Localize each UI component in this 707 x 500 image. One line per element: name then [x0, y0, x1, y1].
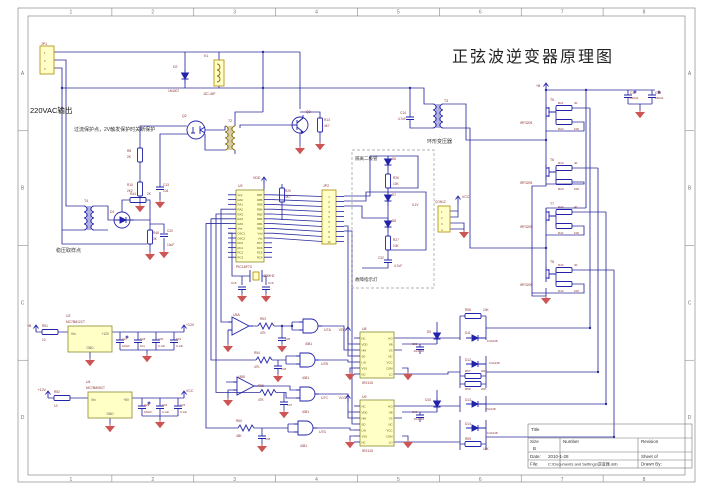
driver-pin-label: NC: [388, 354, 392, 358]
ground-icon: [160, 250, 168, 258]
schematic-label: C20: [167, 229, 173, 233]
opamp-u5a-icon: [228, 317, 253, 335]
schematic-label: Q2: [182, 114, 187, 118]
grid-row-label: C: [688, 300, 692, 306]
mcu-pin-label: Vdd: [258, 232, 263, 236]
schematic-label: R26: [393, 176, 399, 180]
grid-col-label: 1: [70, 477, 73, 483]
schematic-label: 4081: [305, 342, 312, 346]
schematic-label: T2: [228, 119, 232, 123]
diode-d2-icon: [182, 70, 189, 84]
mosfet-t5-icon: [546, 104, 556, 120]
schematic-label: R59: [465, 437, 471, 441]
schematic-label: +12V: [38, 388, 47, 392]
optocoupler-q2-icon: [187, 121, 205, 139]
ground-icon: [278, 344, 286, 352]
annotation-labels: JP1123220VAC输出过流保护点，2V触发保护时关断保护K1JZC-49F…: [27, 42, 664, 453]
schematic-label: 4081: [300, 444, 307, 448]
grid-col-label: 6: [479, 10, 482, 16]
schematic-label: R46: [153, 231, 159, 235]
diode-d7-icon: [385, 192, 392, 206]
schematic-shape: [272, 219, 322, 222]
schematic-label: 隔离二极管: [355, 155, 378, 162]
resistor-r53-icon: [258, 323, 274, 329]
schematic-label: C14: [400, 111, 406, 115]
schematic-label: 5.1V: [412, 203, 419, 207]
schematic-label: MC78M05CT: [86, 386, 105, 390]
transformer-t4-icon: [84, 206, 94, 230]
schematic-label: 47K: [254, 365, 261, 369]
grid-row-label: A: [21, 71, 25, 77]
schematic-label: R60: [236, 419, 242, 423]
schematic-shape: [597, 371, 599, 373]
schematic-label: 20K: [481, 369, 486, 373]
schematic-label: C29: [144, 403, 150, 407]
grid-col-label: 3: [233, 10, 236, 16]
capacitor-c20-icon: [160, 234, 168, 237]
diode-d9-icon: [434, 330, 441, 344]
ground-icon: [316, 142, 324, 150]
schematic-label: R58: [465, 387, 471, 391]
diode-d11-icon: [466, 335, 486, 341]
tb-drawn-label: Drawn By:: [641, 462, 662, 467]
schematic-label: VCC: [339, 396, 347, 400]
connector-jp1: [40, 46, 54, 74]
schematic-label: C16: [268, 281, 274, 285]
resistor-r51-icon: [42, 330, 58, 335]
sheet-title: 正弦波逆变器原理图: [452, 47, 614, 66]
grid-col-label: 4: [315, 10, 318, 16]
resistor-r40-icon: [556, 210, 572, 215]
schematic-shape: [272, 204, 322, 206]
schematic-label: IRF3205: [520, 181, 532, 185]
resistor-r60-icon: [238, 425, 254, 431]
grid-col-label: 5: [397, 10, 400, 16]
tb-file-label: File:: [530, 462, 539, 467]
schematic-label: VDD: [253, 176, 261, 180]
schematic-label: 20K: [481, 387, 486, 391]
schematic-label: 4K7: [285, 195, 291, 199]
driver-pin-label: NC: [388, 422, 392, 426]
mcu-pin-label: RC7: [257, 241, 263, 245]
schematic-label: 1N4148: [413, 349, 424, 353]
schematic-label: R21: [558, 101, 564, 105]
schematic-label: 40: [574, 263, 578, 267]
schematic-page: 1122334455667788AABBCCDD 正弦波逆变器原理图: [0, 0, 707, 500]
schematic-label: JP1: [41, 42, 47, 46]
schematic-label: R10: [127, 183, 133, 187]
resistor-r55-icon: [260, 390, 276, 396]
schematic-label: 10K: [393, 182, 400, 186]
driver-pin-label: HIN: [362, 348, 367, 352]
driver-pin-label: NC: [362, 404, 366, 408]
capacitor-c16-icon: [262, 287, 270, 290]
grid-col-label: 8: [643, 477, 646, 483]
schematic-shape: [272, 209, 322, 211]
schematic-label: 220VAC输出: [30, 105, 72, 115]
schematic-shape: [394, 316, 614, 450]
resistor-r8-icon: [138, 148, 143, 162]
mcu-pin-label: RC4: [257, 256, 263, 260]
grid-row-label: A: [688, 71, 692, 77]
schematic-label: 40: [574, 101, 578, 105]
schematic-label: U8: [362, 327, 367, 331]
schematic-label: 10uF: [167, 243, 174, 247]
ground-icon: [143, 354, 151, 362]
schematic-label: C36: [281, 367, 287, 371]
schematic-label: U5A: [233, 313, 240, 317]
tb-size-value: B: [533, 446, 536, 451]
schematic-label: R57: [465, 369, 471, 373]
schematic-label: C28: [140, 337, 146, 341]
schematic-shape: [262, 87, 264, 89]
schematic-label: D9: [427, 330, 431, 334]
jp2-pin-label: 10: [327, 240, 331, 244]
schematic-label: C37: [287, 403, 293, 407]
schematic-label: T6: [550, 158, 554, 162]
driver-pin-label: SD: [362, 422, 366, 426]
schematic-label: 2K: [147, 192, 152, 196]
grid-col-label: 7: [561, 477, 564, 483]
tb-number-label: Number: [563, 439, 580, 444]
resistor-r21-icon: [556, 106, 572, 111]
schematic-label: R51: [42, 324, 48, 328]
schematic-label: C38: [265, 437, 271, 441]
power-arrow-vdd-u8-icon: [346, 327, 351, 334]
tb-title-label: Title: [531, 427, 540, 432]
schematic-label: Vin: [71, 332, 76, 336]
grid-col-label: 2: [151, 477, 154, 483]
schematic-label: 1N4148: [489, 361, 500, 365]
schematic-label: R55: [258, 384, 264, 388]
driver-pin-label: VB: [389, 410, 393, 414]
driver-pin-label: NC: [362, 440, 366, 444]
schematic-label: CON12: [435, 200, 446, 204]
schematic-label: R42: [558, 263, 564, 267]
schematic-label: U9: [362, 395, 367, 399]
schematic-label: 47K: [258, 398, 265, 402]
power-arrow-vdd-icon: [262, 177, 267, 184]
schematic-label: 10K: [574, 231, 579, 235]
mcu-pin-label: RC1: [238, 246, 244, 250]
schematic-label: R27: [393, 238, 399, 242]
grid-row-label: D: [688, 415, 692, 421]
mcu-pin-label: RA2: [238, 208, 244, 212]
schematic-label: VDD: [339, 328, 347, 332]
schematic-label: R40: [558, 205, 564, 209]
schematic-label: K1: [204, 54, 208, 58]
resistor-r59-icon: [465, 442, 481, 447]
capacitor-c15-icon: [238, 287, 246, 290]
schematic-shape: [585, 89, 587, 91]
power-arrow-con12-icon: [456, 196, 461, 203]
schematic-label: 10K: [574, 187, 579, 191]
schematic-label: C32: [378, 256, 384, 260]
schematic-label: R53: [260, 317, 266, 321]
schematic-shape: [272, 233, 322, 236]
ground-icon: [636, 110, 644, 118]
schematic-label: C39: [412, 342, 418, 346]
schematic-label: 20MHZ: [264, 274, 275, 278]
schematic-label: R44: [130, 192, 136, 196]
schematic-shape: [272, 228, 322, 231]
schematic-label: D2: [173, 65, 178, 69]
schematic-label: R52: [54, 390, 60, 394]
mcu-pin-label: OSC2: [238, 236, 246, 240]
ground-icon: [156, 200, 164, 208]
resistor-r57-icon: [465, 374, 481, 379]
driver-pin-label: VS: [389, 348, 393, 352]
components: [40, 46, 661, 447]
resistor-r10-icon: [138, 182, 143, 196]
grid-col-label: 8: [643, 10, 646, 16]
schematic-label: D8: [392, 219, 396, 223]
ground-icon: [106, 424, 114, 432]
mcu-pin-label: RB7: [257, 193, 263, 197]
ground-icon: [274, 374, 282, 382]
schematic-label: D7: [392, 193, 396, 197]
capacitor-c32-icon: [384, 260, 392, 263]
capacitor-c14-icon: [406, 117, 414, 120]
schematic-label: U7D: [319, 430, 326, 434]
schematic-label: 10K: [483, 308, 490, 312]
schematic-label: R23: [558, 187, 564, 191]
driver-pin-label: VDD: [362, 410, 368, 414]
schematic-label: 0.1uF: [162, 410, 169, 414]
schematic-shape: [262, 51, 264, 53]
resistor-r42-icon: [556, 268, 572, 273]
schematic-label: C31: [176, 337, 182, 341]
ground-icon: [404, 440, 412, 448]
grid-col-label: 6: [479, 477, 482, 483]
schematic-label: 4081: [302, 376, 309, 380]
grid-row-label: B: [688, 186, 692, 192]
ground-icon: [280, 410, 288, 418]
resistor-r13-icon: [318, 118, 323, 132]
driver-pin-label: NC: [362, 372, 366, 376]
transformer-t2-icon: [225, 126, 235, 150]
mcu-pin-label: RC6: [257, 246, 263, 250]
power-arrow-b-icon: [544, 83, 549, 90]
schematic-label: 1N4148: [413, 417, 424, 421]
schematic-label: 220uF: [655, 96, 664, 100]
schematic-label: U4: [86, 380, 91, 384]
schematic-label: IRF3205: [520, 225, 532, 229]
schematic-label: D1: [110, 210, 115, 214]
ground-icon: [136, 204, 144, 212]
tb-date-label: Date:: [530, 454, 541, 459]
schematic-label: 1N4007: [168, 89, 179, 93]
schematic-label: 4.7uF: [398, 117, 406, 121]
schematic-label: 40: [574, 205, 578, 209]
ground-icon: [224, 398, 232, 406]
schematic-shape: [281, 325, 283, 327]
schematic-label: 104: [140, 344, 145, 348]
power-arrow-vcc-u9-icon: [346, 395, 351, 402]
schematic-shape: [61, 87, 63, 89]
schematic-label: 10K: [393, 244, 400, 248]
mcu-pin-label: Vss: [258, 236, 263, 240]
schematic-label: 100uF: [122, 344, 130, 348]
schematic-label: 1N4148: [485, 407, 496, 411]
driver-pin-label: SD: [362, 354, 366, 358]
mcu-pin-label: OSC1: [238, 232, 246, 236]
transformer-t3-icon: [433, 104, 443, 128]
resistor-r26-icon: [386, 174, 391, 188]
schematic-label: U7C: [321, 396, 328, 400]
schematic-label: U7A: [324, 328, 331, 332]
resistor-r58-icon: [465, 382, 481, 387]
ground-icon: [542, 296, 550, 304]
grid-row-label: C: [21, 300, 25, 306]
grid-row-label: D: [21, 415, 25, 421]
grid-col-label: 3: [233, 477, 236, 483]
bridge-d1-diode-icon: [114, 217, 134, 223]
mcu-pin-label: Vpp: [238, 193, 243, 197]
title-block: Title Size B Number Revision Date: 2010-…: [528, 424, 692, 468]
schematic-label: R54: [254, 351, 260, 355]
schematic-label: R8: [127, 149, 131, 153]
ground-icon: [146, 252, 154, 260]
mosfet-t6-icon: [546, 164, 556, 180]
schematic-label: C30: [158, 337, 164, 341]
mcu-pin-label: RB2: [257, 217, 263, 221]
schematic-label: C33: [162, 403, 168, 407]
schematic-label: 10: [54, 404, 58, 408]
schematic-label: 47K: [260, 331, 267, 335]
mcu-pin-label: RA4: [238, 217, 244, 221]
driver-pin-label: VCC: [387, 360, 393, 364]
mcu-pin-label: Vss: [238, 227, 243, 231]
grid-col-label: 5: [397, 477, 400, 483]
schematic-label: 100uF: [144, 410, 152, 414]
mcu-pin-label: RA3: [238, 212, 244, 216]
ground-icon: [296, 146, 304, 154]
relay-k1: [214, 60, 224, 86]
schematic-shape: [272, 238, 322, 242]
schematic-shape: [589, 327, 591, 329]
schematic-label: 4K7: [324, 124, 330, 128]
mcu-pin-label: RB4: [257, 208, 263, 212]
schematic-label: VCC: [186, 389, 194, 393]
driver-pin-label: VS: [389, 416, 393, 420]
mcu-pin-label: RB6: [257, 198, 263, 202]
driver-pin-label: LIN: [362, 360, 366, 364]
schematic-label: JP2: [323, 184, 329, 188]
schematic-label: C34: [180, 403, 186, 407]
ground-icon: [258, 444, 266, 452]
schematic-label: 0.1uF: [180, 410, 187, 414]
schematic-shape: [272, 214, 322, 217]
schematic-label: 环形变压器: [427, 138, 452, 145]
schematic-label: T7: [550, 202, 554, 206]
schematic-label: 220uF: [630, 96, 639, 100]
diode-d8-icon: [385, 218, 392, 232]
schematic-label: C17: [630, 91, 636, 95]
schematic-label: C35: [285, 337, 291, 341]
tb-sheet-label: Sheet of: [641, 454, 659, 459]
schematic-label: PIC16F73: [236, 265, 252, 269]
diode-d6-icon: [385, 156, 392, 170]
schematic-label: R41: [558, 231, 564, 235]
grid-col-label: 4: [315, 477, 318, 483]
schematic-label: 10: [42, 338, 46, 342]
schematic-shape: [605, 403, 607, 405]
schematic-label: C18: [655, 91, 661, 95]
ground-icon: [224, 344, 232, 352]
schematic-label: 10K: [574, 127, 579, 131]
mcu-pin-label: RB5: [257, 203, 263, 207]
mcu-pin-label: RC0: [238, 241, 244, 245]
mcu-pin-label: RC5: [257, 251, 263, 255]
schematic-label: 0.1uF: [158, 344, 165, 348]
schematic-label: U7B: [321, 362, 328, 366]
andgate-u7c-icon: [296, 387, 319, 401]
schematic-label: GND: [106, 412, 114, 416]
schematic-label: 45K: [236, 434, 243, 438]
schematic-label: D14: [465, 422, 471, 426]
ground-icon: [86, 358, 94, 366]
schematic-label: D6: [392, 157, 396, 161]
schematic-label: VCC: [462, 195, 470, 199]
resistor-r44-icon: [130, 198, 146, 203]
mosfet-t7-icon: [546, 208, 556, 224]
optocoupler-inner: [191, 126, 205, 134]
schematic-label: 3K: [153, 237, 158, 241]
schematic-label: IR2110: [362, 449, 373, 453]
schematic-label: R19: [558, 161, 564, 165]
schematic-label: C40: [412, 410, 418, 414]
schematic-shape: [409, 87, 411, 89]
crystal-y1-icon: [250, 270, 262, 282]
schematic-label: +5V: [123, 398, 130, 402]
schematic-label: U5B: [238, 375, 245, 379]
schematic-label: T8: [550, 260, 554, 264]
schematic-label: +12V: [186, 323, 195, 327]
ground-icon: [346, 372, 354, 380]
mcu-pin-label: RC2: [238, 251, 244, 255]
schematic-shape: [272, 224, 322, 227]
schematic-label: 0.1uF: [176, 344, 183, 348]
schematic-label: R24: [558, 127, 564, 131]
ground-icon: [262, 294, 270, 302]
driver-pin-label: COM: [386, 434, 393, 438]
schematic-label: T5: [550, 98, 554, 102]
schematic-label: +12V: [101, 332, 109, 336]
schematic-label: MC78M12CT: [66, 320, 85, 324]
resistor-r19-icon: [556, 166, 572, 171]
schematic-label: D13: [465, 398, 471, 402]
schematic-shape: [291, 325, 293, 327]
schematic-label: 1N4148: [487, 339, 498, 343]
power-arrow-b2-icon: [34, 325, 39, 332]
schematic-shape: [443, 90, 655, 437]
schematic-label: R56: [465, 308, 471, 312]
schematic-label: 4.7uF: [394, 264, 402, 268]
schematic-label: R43: [558, 289, 564, 293]
schematic-label: Vin: [91, 398, 96, 402]
transistor-q3-icon: [292, 115, 308, 133]
driver-pin-label: VSS: [362, 434, 368, 438]
mcu-pin-label: RA0: [238, 198, 244, 202]
ground-icon: [346, 440, 354, 448]
ground-icon: [460, 230, 468, 238]
schematic-label: IR2110: [362, 381, 373, 385]
tb-revision-label: Revision: [641, 439, 659, 444]
driver-pin-label: COM: [386, 366, 393, 370]
schematic-label: JZC-49F: [203, 92, 215, 96]
schematic-label: 40: [574, 161, 578, 165]
